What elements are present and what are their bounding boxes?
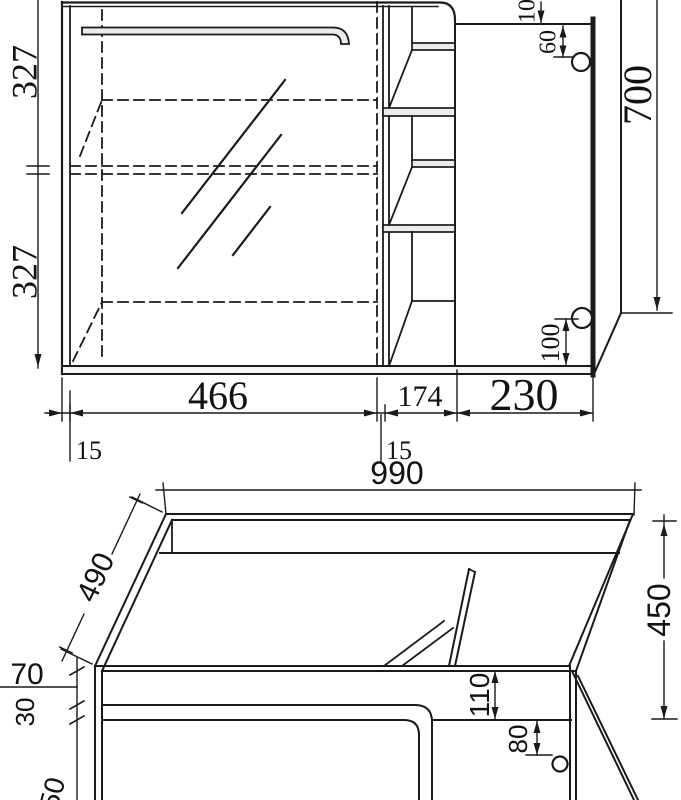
dim-label-total-height: 700: [615, 65, 660, 125]
furniture-technical-drawing: 327 327 700 10 60 100: [0, 0, 681, 800]
countertop: [95, 514, 633, 671]
dim-label-depth: 490: [70, 548, 121, 607]
dim-arrow: [654, 297, 661, 310]
dim-arrow: [70, 410, 83, 417]
dim-label-lower-height: 327: [5, 245, 45, 299]
shelf-diagonal: [389, 50, 412, 108]
dim-arrow: [444, 410, 457, 417]
right-side-edge: [578, 676, 638, 800]
divider-top-cap: [469, 569, 475, 572]
dim-label-mirror-width: 466: [188, 373, 248, 418]
dim-arrow: [661, 524, 668, 536]
dim-label-shelf-width: 174: [398, 380, 443, 413]
dim-tick: [634, 483, 635, 515]
counter-right-edge: [576, 520, 630, 671]
dim-line: [112, 494, 140, 554]
cabinet-door: [456, 24, 592, 328]
hidden-line: [73, 302, 102, 361]
counter-surface-line: [384, 621, 444, 666]
dim-arrow: [580, 410, 593, 417]
niche-opening-edge: [102, 720, 419, 800]
dim-label-knob: 80: [503, 725, 533, 754]
side-panel: [594, 0, 621, 374]
dim-arrow: [457, 410, 470, 417]
mirror-hatch-line: [233, 207, 270, 255]
door-knob-top: [572, 53, 590, 71]
door-knob-bottom: [572, 308, 592, 328]
dim-label-apron: 110: [464, 673, 495, 718]
outline-line: [62, 3, 455, 21]
counter-left-edge: [102, 520, 172, 671]
drawer-knob: [553, 757, 568, 772]
shelf-board: [412, 43, 455, 50]
dim-arrow: [364, 410, 377, 417]
hidden-edges-dashed: [70, 2, 377, 366]
dim-label-rail: 70: [10, 658, 43, 691]
shelf-board: [383, 108, 455, 116]
hidden-line: [80, 100, 102, 156]
dim-label-knob-top: 60: [535, 30, 561, 54]
base-cabinet: [95, 666, 638, 800]
dim-arrow: [385, 410, 398, 417]
shelf-diagonal: [389, 167, 412, 225]
dim-arrow: [35, 354, 42, 367]
dim-label-left-thickness: 15: [76, 436, 102, 465]
shelf-diagonal: [389, 301, 412, 366]
dim-label-knob-bottom: 100: [536, 324, 565, 363]
dim-label-door-width: 230: [490, 369, 559, 420]
drawing-page: 327 327 700 10 60 100: [0, 0, 681, 800]
cabinet-outline: [62, 2, 593, 375]
shelf-board: [412, 160, 455, 167]
dim-label-partial: 50: [33, 774, 71, 800]
light-bar: [82, 28, 349, 45]
dim-label-lip: 30: [10, 698, 40, 727]
side-panel-edge: [594, 313, 621, 374]
shelf-column: [383, 6, 455, 366]
dim-label-height: 450: [641, 583, 677, 636]
dim-arrow: [534, 721, 541, 733]
dim-extension: [132, 497, 162, 512]
dim-label-width: 990: [370, 455, 423, 491]
shelf-board: [383, 225, 455, 232]
right-side-edge: [572, 671, 634, 800]
dim-line: [62, 614, 84, 661]
dim-label-top-offset: 10: [514, 0, 540, 23]
dim-label-upper-height: 327: [5, 45, 45, 99]
dim-arrow: [534, 743, 541, 755]
dim-tick: [163, 483, 166, 514]
mirror-hatch-line: [178, 135, 281, 268]
dimensions-front: 327 327 700 10 60 100: [5, 0, 672, 465]
front-elevation-view: 327 327 700 10 60 100: [5, 0, 672, 465]
dim-arrow: [49, 410, 62, 417]
perspective-view: 990 490 450 110: [0, 455, 677, 800]
dim-arrow: [661, 706, 668, 719]
divider-panel: [449, 569, 475, 666]
